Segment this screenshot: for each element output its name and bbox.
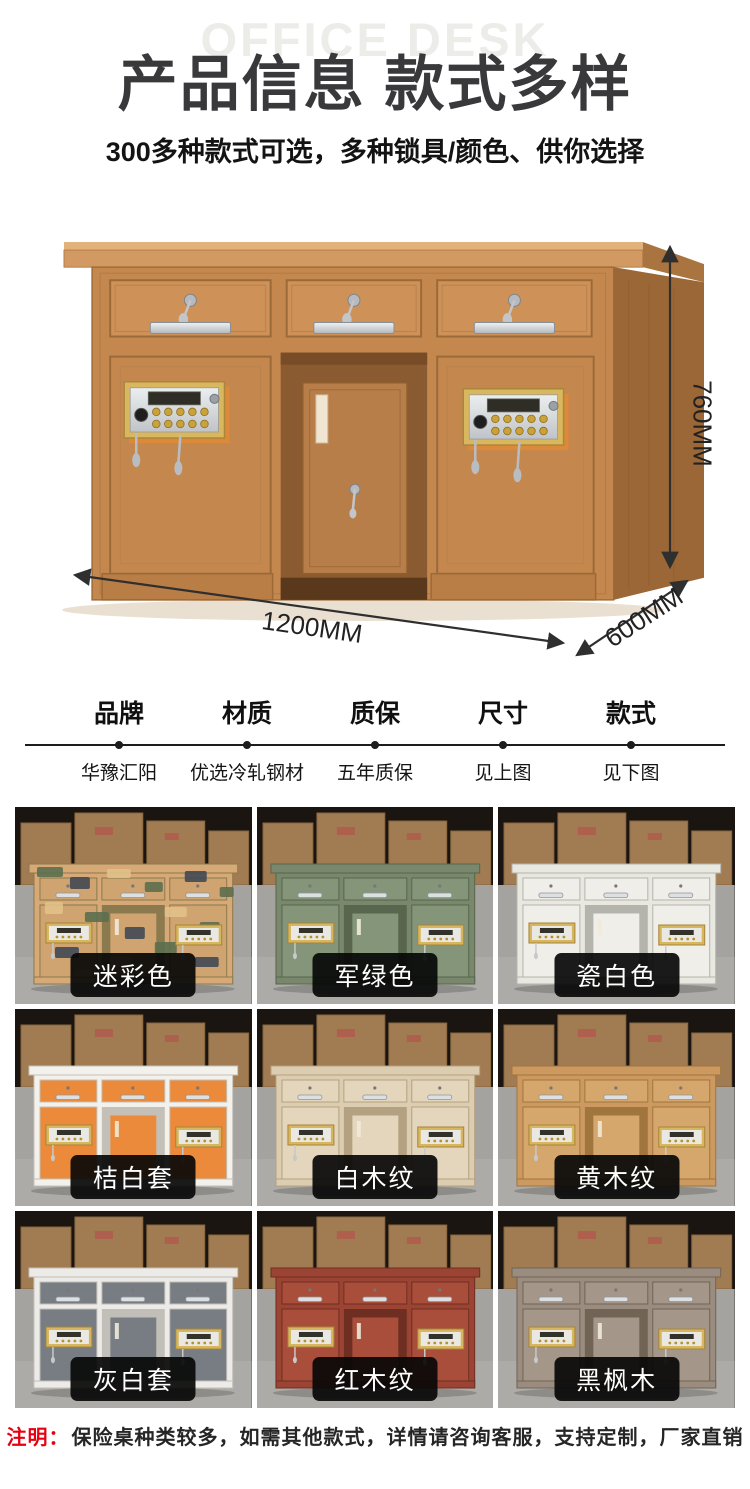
style-card-orange-white: 桔白套 xyxy=(15,1009,252,1206)
style-label: 迷彩色 xyxy=(71,953,196,997)
spec-style: 款式 见下图 xyxy=(567,692,695,785)
spec-header: 材质 xyxy=(183,692,311,736)
style-card-army-green: 军绿色 xyxy=(257,807,494,1004)
style-grid: 迷彩色 xyxy=(15,807,735,1408)
spec-value: 见上图 xyxy=(439,758,567,785)
spec-value: 见下图 xyxy=(567,758,695,785)
style-card-porcelain-white: 瓷白色 xyxy=(498,807,735,1004)
style-card-red-wood: 红木纹 xyxy=(257,1211,494,1408)
spec-value: 五年质保 xyxy=(311,758,439,785)
style-label: 灰白套 xyxy=(71,1357,196,1401)
style-label: 军绿色 xyxy=(312,953,437,997)
style-label: 瓷白色 xyxy=(554,953,679,997)
spec-header: 质保 xyxy=(311,692,439,736)
spec-header: 品牌 xyxy=(55,692,183,736)
spec-value: 优选冷轧钢材 xyxy=(183,758,311,785)
style-label: 黑枫木 xyxy=(554,1357,679,1401)
spec-dot xyxy=(115,741,123,749)
spec-warranty: 质保 五年质保 xyxy=(311,692,439,785)
product-detail-page: OFFICE DESK 产品信息 款式多样 300多种款式可选，多种锁具/颜色、… xyxy=(0,0,750,1489)
spec-value: 华豫汇阳 xyxy=(55,758,183,785)
spec-dot xyxy=(243,741,251,749)
hero-desk-illustration xyxy=(62,236,704,628)
footnote-prefix: 注明： xyxy=(7,1427,70,1449)
style-label: 黄木纹 xyxy=(554,1155,679,1199)
hero-product-image: 760MM 1200MM 600MM xyxy=(0,190,750,682)
style-card-camouflage: 迷彩色 xyxy=(15,807,252,1004)
spec-dot xyxy=(371,741,379,749)
spec-brand: 品牌 华豫汇阳 xyxy=(55,692,183,785)
spec-dot xyxy=(499,741,507,749)
spec-size: 尺寸 见上图 xyxy=(439,692,567,785)
spec-strip: 品牌 华豫汇阳 材质 优选冷轧钢材 质保 五年质保 尺寸 见上图 款式 xyxy=(55,692,695,796)
footnote: 注明：保险桌种类较多，如需其他款式，详情请咨询客服，支持定制，厂家直销 xyxy=(0,1421,750,1450)
spec-header: 尺寸 xyxy=(439,692,567,736)
style-card-yellow-wood: 黄木纹 xyxy=(498,1009,735,1206)
page-subtitle: 300多种款式可选，多种锁具/颜色、供你选择 xyxy=(0,130,750,169)
style-card-white-wood: 白木纹 xyxy=(257,1009,494,1206)
page-title: 产品信息 款式多样 xyxy=(0,36,750,123)
spec-header: 款式 xyxy=(567,692,695,736)
style-label: 白木纹 xyxy=(312,1155,437,1199)
footnote-text: 保险桌种类较多，如需其他款式，详情请咨询客服，支持定制，厂家直销 xyxy=(72,1427,744,1449)
style-card-gray-white: 灰白套 xyxy=(15,1211,252,1408)
style-card-black-maple: 黑枫木 xyxy=(498,1211,735,1408)
style-label: 桔白套 xyxy=(71,1155,196,1199)
height-dimension-label: 760MM xyxy=(687,378,718,470)
spec-dot xyxy=(627,741,635,749)
spec-material: 材质 优选冷轧钢材 xyxy=(183,692,311,785)
style-label: 红木纹 xyxy=(312,1357,437,1401)
